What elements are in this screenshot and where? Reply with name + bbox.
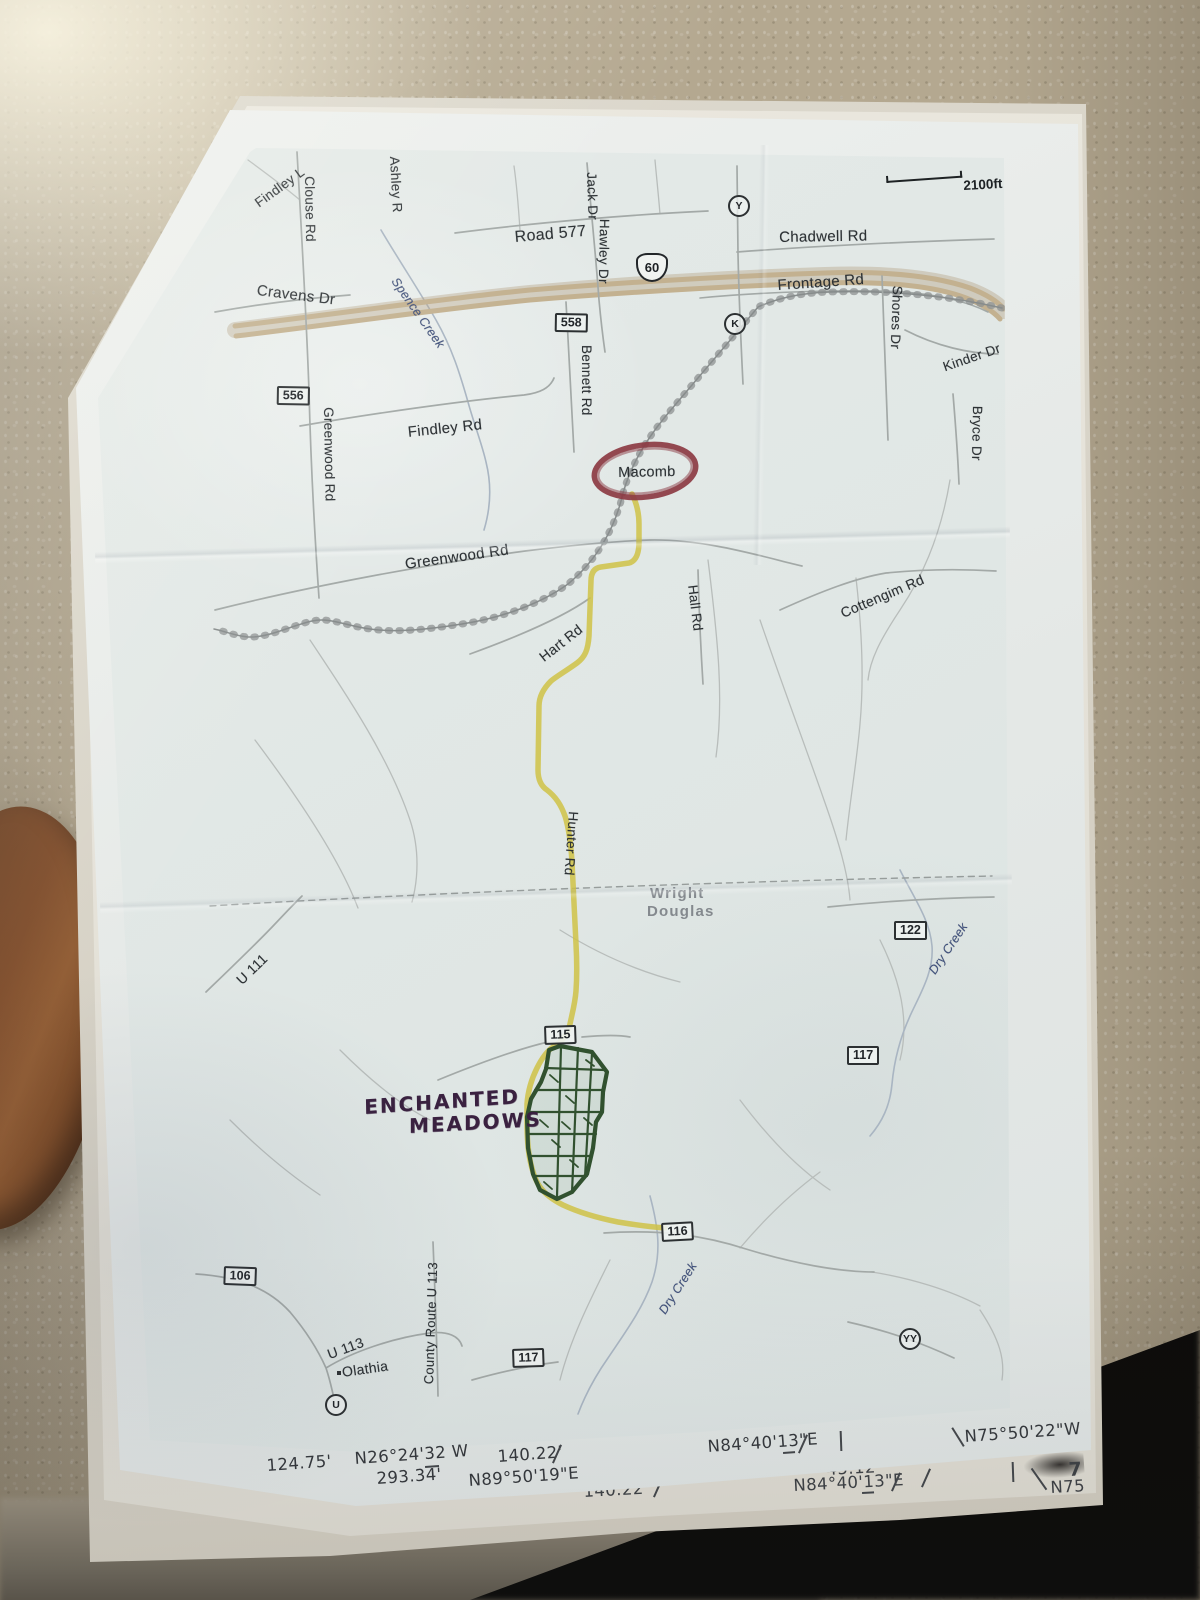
scale-label: 2100ft [963, 176, 1003, 193]
road-label-chadwell-rd: Chadwell Rd [779, 227, 868, 246]
photo-of-paper-map: 174.75' N26°24'32 W 140.22' 45.12 N84°40… [0, 0, 1200, 1600]
route-shield-116: 116 [661, 1221, 694, 1242]
route-shield-106: 106 [223, 1266, 257, 1286]
route-circle-k: K [724, 313, 746, 335]
main-roads [196, 152, 998, 1396]
road-label-hawley-dr: Hawley Dr [596, 219, 612, 284]
route-shield-122: 122 [894, 921, 927, 940]
county-label-douglas: Douglas [647, 903, 715, 920]
road-label-ashley-r: Ashley R [387, 156, 405, 213]
road-label-shores-dr: Shores Dr [888, 285, 905, 349]
us-60-number: 60 [645, 260, 659, 275]
road-label-clouse-rd: Clouse Rd [302, 176, 318, 242]
route-shield-117-right: 117 [847, 1046, 879, 1065]
road-label-greenwood-rd-vertical: Greenwood Rd [321, 407, 338, 502]
route-shield-556: 556 [277, 386, 310, 406]
route-shield-558: 558 [555, 313, 588, 333]
route-circle-u: U [325, 1394, 347, 1416]
road-label-bryce-dr: Bryce Dr [969, 406, 985, 461]
creeks [381, 230, 932, 1414]
road-label-jack-dr: Jack Dr [584, 172, 601, 220]
road-label-bennett-rd: Bennett Rd [579, 345, 594, 416]
route-shield-115: 115 [544, 1025, 577, 1045]
route-shield-117-bottom: 117 [512, 1348, 545, 1368]
route-circle-y: Y [728, 195, 750, 217]
olathia-town-marker [337, 1371, 341, 1375]
town-label-macomb: Macomb [618, 464, 676, 481]
route-circle-yy: YY [899, 1328, 921, 1350]
minor-roads-faint [230, 160, 1003, 1380]
